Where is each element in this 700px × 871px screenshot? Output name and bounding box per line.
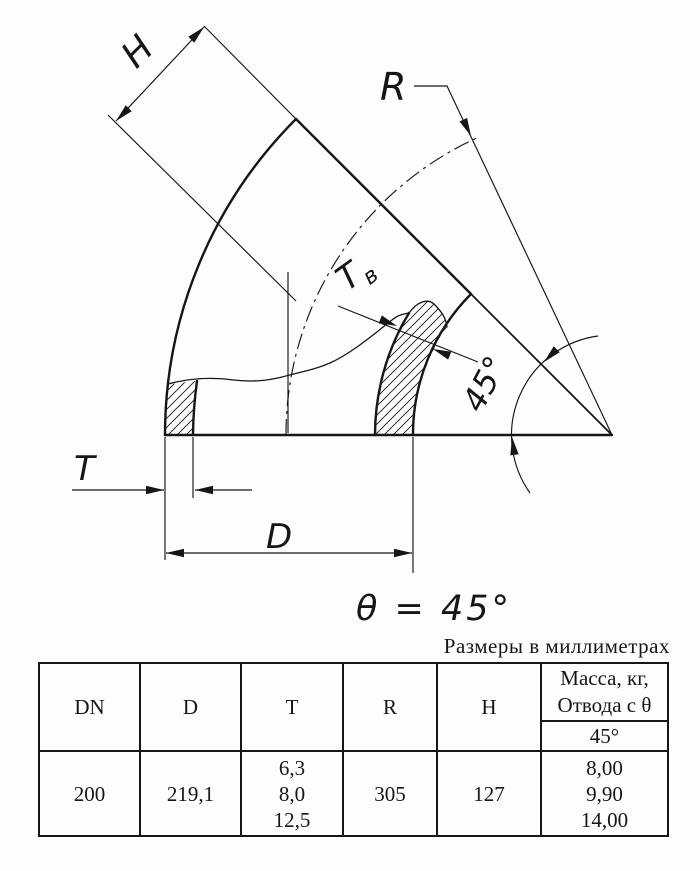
h-extension-upper	[204, 26, 296, 119]
h-extension-lower	[108, 115, 296, 301]
value-mass: 8,00 9,90 14,00	[542, 752, 667, 835]
r-leader-line	[414, 86, 612, 435]
value-dn: 200	[40, 752, 139, 835]
header-d: D	[141, 664, 240, 750]
dim-label-h: H	[114, 28, 162, 76]
value-mass-1: 8,00	[586, 755, 623, 781]
arrowheads	[113, 24, 560, 557]
upper-end-face	[296, 119, 471, 294]
d-arrow-left	[166, 549, 184, 557]
value-mass-3: 14,00	[581, 807, 628, 833]
header-mass: Масса, кг, Отвода с θ	[542, 664, 667, 720]
header-dn: DN	[40, 664, 139, 750]
header-h: H	[438, 664, 540, 750]
dim-label-r: R	[380, 65, 406, 109]
dim-label-d: D	[266, 517, 292, 557]
header-mass-line1: Масса, кг,	[560, 665, 648, 692]
drawing-sheet: H R T в T D 45° θ = 45° Размеры в миллим…	[0, 0, 700, 871]
value-t: 6,3 8,0 12,5	[242, 752, 342, 835]
dim-label-angle: 45°	[455, 350, 515, 418]
dimension-table: DN D T R H Масса, кг, Отвода с θ 45° 200…	[38, 662, 669, 837]
t-arrow-left	[146, 486, 164, 494]
header-mass-angle: 45°	[542, 722, 667, 750]
header-mass-group: Масса, кг, Отвода с θ 45°	[542, 664, 667, 750]
value-r: 305	[344, 752, 436, 835]
d-arrow-right	[394, 549, 412, 557]
angle-dimension-arc	[512, 336, 598, 493]
value-mass-2: 9,90	[586, 781, 623, 807]
header-mass-line2: Отвода с θ	[558, 692, 652, 719]
value-t-1: 6,3	[279, 755, 305, 781]
header-t: T	[242, 664, 342, 750]
elbow-technical-drawing: H R T в T D 45° θ = 45°	[0, 0, 700, 660]
angle-arrow-bottom	[508, 436, 519, 455]
r-arrow	[460, 118, 475, 138]
value-h: 127	[438, 752, 540, 835]
h-arrow-bottom	[113, 105, 132, 124]
t-arrow-right	[195, 486, 213, 494]
value-t-2: 8,0	[279, 781, 305, 807]
dim-label-t: T	[74, 449, 97, 489]
value-t-3: 12,5	[274, 807, 311, 833]
units-note: Размеры в миллиметрах	[444, 634, 670, 659]
value-d: 219,1	[141, 752, 240, 835]
header-r: R	[344, 664, 436, 750]
theta-equation: θ = 45°	[356, 589, 512, 629]
